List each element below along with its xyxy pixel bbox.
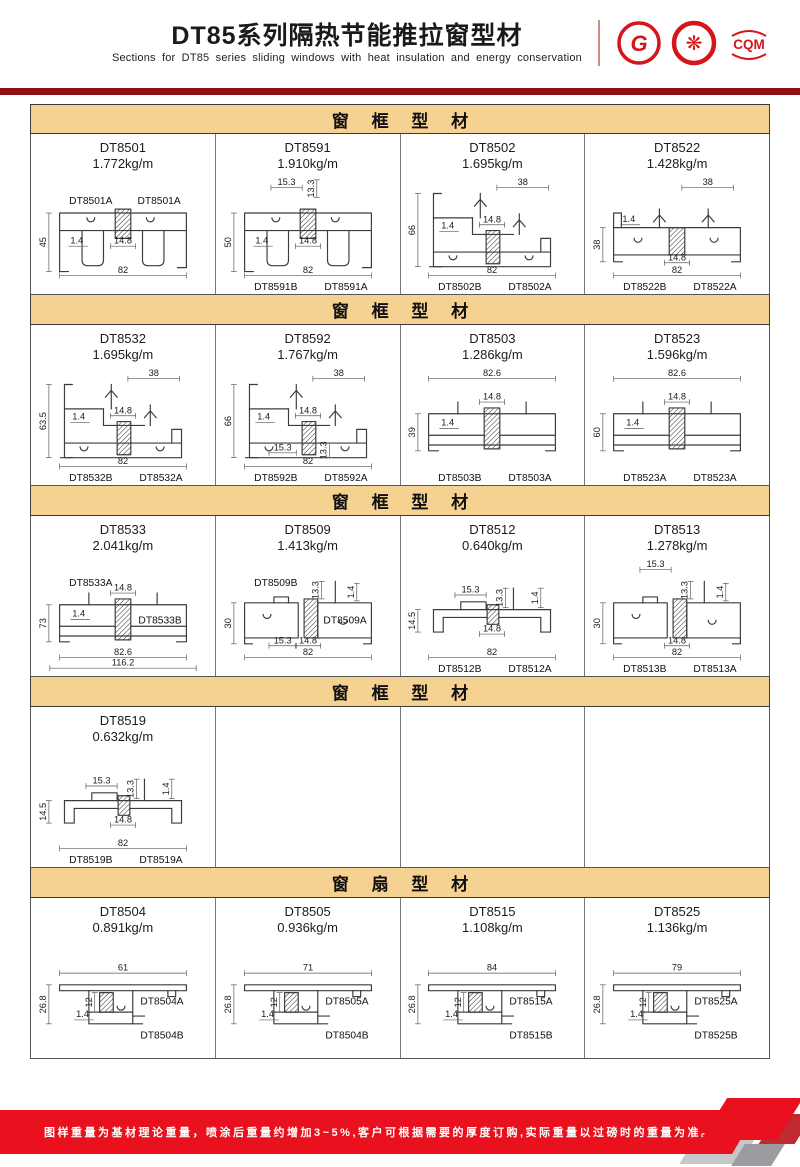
- svg-text:1.4: 1.4: [72, 608, 85, 618]
- svg-text:71: 71: [302, 962, 312, 972]
- cqm-certification-logo-icon: CQM: [726, 20, 772, 66]
- profile-row: DT8501 1.772kg/m 451.414.882DT8501ADT850…: [30, 134, 770, 295]
- svg-text:66: 66: [407, 224, 417, 234]
- svg-text:12: 12: [453, 997, 463, 1007]
- profile-cell: [216, 707, 401, 867]
- profile-section: 窗 框 型 材 DT8501 1.772kg/m 451.414.882DT85…: [30, 104, 770, 295]
- profile-model: DT8503: [469, 331, 515, 347]
- svg-text:15.3: 15.3: [647, 559, 665, 569]
- profile-row: DT8504 0.891kg/m 6126.8121.4DT8504ADT850…: [30, 898, 770, 1059]
- svg-text:26.8: 26.8: [223, 995, 233, 1013]
- svg-text:❋: ❋: [686, 33, 703, 55]
- svg-text:DT8512A: DT8512A: [509, 664, 552, 675]
- svg-text:DT8515B: DT8515B: [510, 1030, 553, 1041]
- profile-weight: 1.428kg/m: [647, 156, 708, 172]
- profile-model: DT8525: [654, 904, 700, 920]
- svg-text:30: 30: [223, 618, 233, 628]
- svg-text:82: 82: [302, 647, 312, 657]
- profile-model: DT8515: [469, 904, 515, 920]
- profile-cell: DT8512 0.640kg/m 15.313.31.414.514.882DT…: [401, 516, 586, 676]
- catalog-body: 窗 框 型 材 DT8501 1.772kg/m 451.414.882DT85…: [30, 104, 770, 1059]
- section-header: 窗 框 型 材: [30, 677, 770, 707]
- svg-text:DT8532B: DT8532B: [69, 473, 112, 484]
- svg-text:38: 38: [592, 239, 602, 249]
- profile-model: DT8509: [285, 522, 331, 538]
- svg-text:DT8592B: DT8592B: [254, 473, 297, 484]
- section-header: 窗 框 型 材: [30, 295, 770, 325]
- svg-text:30: 30: [592, 618, 602, 628]
- svg-text:1.4: 1.4: [715, 585, 725, 598]
- profile-cell: DT8515 1.108kg/m 8426.8121.4DT8515ADT851…: [401, 898, 586, 1058]
- svg-text:DT8509B: DT8509B: [254, 578, 297, 589]
- svg-text:82: 82: [672, 265, 682, 275]
- svg-text:DT8513A: DT8513A: [694, 664, 737, 675]
- profile-row: DT8533 2.041kg/m 731.414.882.6116.2DT853…: [30, 516, 770, 677]
- svg-text:26.8: 26.8: [592, 995, 602, 1013]
- svg-text:1.4: 1.4: [255, 235, 268, 245]
- profile-model: DT8505: [285, 904, 331, 920]
- profile-row: DT8532 1.695kg/m 3863.51.414.882DT8532BD…: [30, 325, 770, 486]
- profile-drawing: 15.313.3501.414.882DT8591BDT8591A: [217, 174, 399, 293]
- svg-text:84: 84: [487, 962, 497, 972]
- profile-drawing: 15.313.31.414.514.882DT8519BDT8519A: [32, 747, 214, 866]
- svg-text:66: 66: [223, 415, 233, 425]
- profile-cell: [401, 707, 586, 867]
- svg-text:DT8502B: DT8502B: [439, 282, 482, 293]
- svg-text:13.3: 13.3: [318, 441, 328, 459]
- logo-group: G ❋ CQM: [616, 20, 772, 66]
- profile-model: DT8533: [100, 522, 146, 538]
- profile-weight: 0.891kg/m: [93, 920, 154, 936]
- profile-weight: 1.695kg/m: [93, 347, 154, 363]
- footer-note-bar: 图样重量为基材理论重量，喷涂后重量约增加3~5%,客户可根据需要的厚度订购,实际…: [0, 1110, 758, 1154]
- svg-text:82: 82: [118, 456, 128, 466]
- profile-section: 窗 框 型 材 DT8519 0.632kg/m 15.313.31.414.5…: [30, 677, 770, 868]
- svg-text:82.6: 82.6: [483, 368, 501, 378]
- page-footer: 图样重量为基材理论重量，喷涂后重量约增加3~5%,客户可根据需要的厚度订购,实际…: [0, 1096, 800, 1167]
- profile-cell: DT8503 1.286kg/m 82.61.414.839DT8503BDT8…: [401, 325, 586, 485]
- svg-text:82.6: 82.6: [668, 368, 686, 378]
- svg-text:82: 82: [487, 265, 497, 275]
- profile-cell: DT8533 2.041kg/m 731.414.882.6116.2DT853…: [31, 516, 216, 676]
- section-title: 窗 框 型 材: [323, 297, 477, 322]
- profile-cell: DT8504 0.891kg/m 6126.8121.4DT8504ADT850…: [31, 898, 216, 1058]
- svg-text:61: 61: [118, 962, 128, 972]
- profile-model: DT8502: [469, 140, 515, 156]
- footer-note: 图样重量为基材理论重量，喷涂后重量约增加3~5%,客户可根据需要的厚度订购,实际…: [0, 1124, 715, 1140]
- svg-text:82: 82: [672, 647, 682, 657]
- section-title: 窗 框 型 材: [323, 488, 477, 513]
- svg-text:DT8504B: DT8504B: [325, 1030, 368, 1041]
- profile-drawing: 82.61.46014.8DT8523ADT8523A: [586, 365, 768, 484]
- svg-text:14.8: 14.8: [114, 405, 132, 415]
- profile-section: 窗 框 型 材 DT8533 2.041kg/m 731.414.882.611…: [30, 486, 770, 677]
- page-header: DT85系列隔热节能推拉窗型材 Sections for DT85 series…: [0, 20, 772, 66]
- svg-text:1.4: 1.4: [72, 411, 85, 421]
- svg-text:15.3: 15.3: [273, 442, 291, 452]
- svg-text:1.4: 1.4: [446, 1009, 459, 1019]
- profile-cell: DT8505 0.936kg/m 7126.8121.4DT8505ADT850…: [216, 898, 401, 1058]
- page-subtitle: Sections for DT85 series sliding windows…: [112, 52, 582, 64]
- svg-text:1.4: 1.4: [442, 417, 455, 427]
- profile-weight: 1.772kg/m: [93, 156, 154, 172]
- page-title: DT85系列隔热节能推拉窗型材: [112, 22, 582, 51]
- svg-text:14.8: 14.8: [668, 252, 686, 262]
- profile-drawing: 38661.414.815.313.382DT8592BDT8592A: [217, 365, 399, 484]
- profile-cell: DT8509 1.413kg/m 13.31.43015.314.882DT85…: [216, 516, 401, 676]
- svg-text:DT8591A: DT8591A: [324, 282, 367, 293]
- svg-text:82: 82: [302, 265, 312, 275]
- profile-model: DT8522: [654, 140, 700, 156]
- svg-text:14.5: 14.5: [407, 611, 417, 629]
- svg-text:26.8: 26.8: [38, 995, 48, 1013]
- profile-model: DT8523: [654, 331, 700, 347]
- profile-drawing: 38661.414.882DT8502BDT8502A: [401, 174, 583, 293]
- profile-weight: 1.767kg/m: [277, 347, 338, 363]
- header-text-block: DT85系列隔热节能推拉窗型材 Sections for DT85 series…: [112, 22, 582, 65]
- svg-text:1.4: 1.4: [345, 585, 355, 598]
- profile-cell: [585, 707, 769, 867]
- profile-drawing: 6126.8121.4DT8504ADT8504B: [32, 938, 214, 1057]
- profile-weight: 0.640kg/m: [462, 538, 523, 554]
- profile-drawing: 15.313.31.43014.882DT8513BDT8513A: [586, 556, 768, 675]
- svg-text:CQM: CQM: [733, 37, 765, 52]
- section-title: 窗 框 型 材: [323, 107, 477, 132]
- svg-text:63.5: 63.5: [38, 412, 48, 430]
- header-rule: [0, 88, 800, 95]
- svg-text:DT8503A: DT8503A: [509, 473, 552, 484]
- svg-text:DT8522A: DT8522A: [694, 282, 737, 293]
- svg-text:1.4: 1.4: [626, 417, 639, 427]
- svg-text:14.8: 14.8: [668, 391, 686, 401]
- svg-text:1.4: 1.4: [530, 591, 540, 604]
- svg-text:DT8522B: DT8522B: [623, 282, 666, 293]
- svg-text:38: 38: [333, 368, 343, 378]
- catalog-page: DT85系列隔热节能推拉窗型材 Sections for DT85 series…: [0, 0, 800, 1167]
- svg-text:G: G: [630, 31, 647, 56]
- section-title: 窗 框 型 材: [323, 679, 477, 704]
- svg-text:DT8501A: DT8501A: [69, 196, 112, 207]
- svg-text:DT8505A: DT8505A: [325, 996, 368, 1007]
- svg-text:15.3: 15.3: [273, 635, 291, 645]
- svg-text:DT8523A: DT8523A: [623, 473, 666, 484]
- svg-text:60: 60: [592, 427, 602, 437]
- svg-text:DT8501A: DT8501A: [137, 196, 180, 207]
- svg-text:DT8525B: DT8525B: [695, 1030, 738, 1041]
- svg-text:DT8503B: DT8503B: [439, 473, 482, 484]
- svg-text:13.3: 13.3: [310, 581, 320, 599]
- svg-text:14.8: 14.8: [114, 814, 132, 824]
- svg-text:14.5: 14.5: [38, 802, 48, 820]
- svg-text:12: 12: [638, 997, 648, 1007]
- profile-cell: DT8519 0.632kg/m 15.313.31.414.514.882DT…: [31, 707, 216, 867]
- section-header: 窗 框 型 材: [30, 486, 770, 516]
- svg-text:DT8504B: DT8504B: [140, 1030, 183, 1041]
- profile-cell: DT8591 1.910kg/m 15.313.3501.414.882DT85…: [216, 134, 401, 294]
- section-header: 窗 扇 型 材: [30, 868, 770, 898]
- svg-text:82: 82: [487, 647, 497, 657]
- svg-text:DT8525A: DT8525A: [695, 996, 738, 1007]
- profile-drawing: 13.31.43015.314.882DT8509BDT8509A: [217, 556, 399, 675]
- svg-text:82: 82: [302, 456, 312, 466]
- svg-text:15.3: 15.3: [462, 584, 480, 594]
- svg-text:45: 45: [38, 237, 48, 247]
- svg-text:13.3: 13.3: [495, 588, 505, 606]
- profile-model: DT8532: [100, 331, 146, 347]
- svg-text:DT8504A: DT8504A: [140, 996, 183, 1007]
- profile-weight: 1.413kg/m: [277, 538, 338, 554]
- svg-text:DT8533A: DT8533A: [69, 578, 112, 589]
- svg-text:14.8: 14.8: [299, 235, 317, 245]
- svg-text:DT8513B: DT8513B: [623, 664, 666, 675]
- profile-drawing: 82.61.414.839DT8503BDT8503A: [401, 365, 583, 484]
- profile-drawing: 381.43814.882DT8522BDT8522A: [586, 174, 768, 293]
- profile-drawing: 3863.51.414.882DT8532BDT8532A: [32, 365, 214, 484]
- profile-weight: 1.910kg/m: [277, 156, 338, 172]
- profile-weight: 1.596kg/m: [647, 347, 708, 363]
- profile-cell: DT8513 1.278kg/m 15.313.31.43014.882DT85…: [585, 516, 769, 676]
- svg-text:12: 12: [84, 997, 94, 1007]
- svg-text:1.4: 1.4: [76, 1009, 89, 1019]
- svg-text:14.8: 14.8: [483, 214, 501, 224]
- round-emblem-logo-icon: ❋: [671, 20, 717, 66]
- profile-section: 窗 框 型 材 DT8532 1.695kg/m 3863.51.414.882…: [30, 295, 770, 486]
- profile-cell: DT8592 1.767kg/m 38661.414.815.313.382DT…: [216, 325, 401, 485]
- svg-text:1.4: 1.4: [623, 213, 636, 223]
- profile-drawing: 7126.8121.4DT8505ADT8504B: [217, 938, 399, 1057]
- svg-text:26.8: 26.8: [407, 995, 417, 1013]
- svg-text:38: 38: [703, 177, 713, 187]
- header-divider: [598, 20, 600, 66]
- svg-text:1.4: 1.4: [261, 1009, 274, 1019]
- svg-text:14.8: 14.8: [114, 582, 132, 592]
- profile-section: 窗 扇 型 材 DT8504 0.891kg/m 6126.8121.4DT85…: [30, 868, 770, 1059]
- jiahua-certification-logo-icon: G: [616, 20, 662, 66]
- profile-model: DT8504: [100, 904, 146, 920]
- profile-weight: 2.041kg/m: [93, 538, 154, 554]
- profile-drawing: 451.414.882DT8501ADT8501A: [32, 174, 214, 293]
- svg-text:14.8: 14.8: [299, 405, 317, 415]
- profile-model: DT8592: [285, 331, 331, 347]
- profile-model: DT8591: [285, 140, 331, 156]
- svg-text:116.2: 116.2: [112, 657, 134, 667]
- svg-text:DT8533B: DT8533B: [138, 615, 181, 626]
- svg-text:DT8502A: DT8502A: [509, 282, 552, 293]
- profile-model: DT8519: [100, 713, 146, 729]
- svg-text:DT8523A: DT8523A: [694, 473, 737, 484]
- svg-text:DT8519A: DT8519A: [139, 855, 182, 866]
- profile-drawing: 15.313.31.414.514.882DT8512BDT8512A: [401, 556, 583, 675]
- svg-text:13.3: 13.3: [305, 179, 315, 197]
- profile-cell: DT8532 1.695kg/m 3863.51.414.882DT8532BD…: [31, 325, 216, 485]
- svg-text:1.4: 1.4: [70, 235, 83, 245]
- svg-text:82.6: 82.6: [114, 647, 132, 657]
- svg-text:38: 38: [148, 368, 158, 378]
- profile-drawing: 731.414.882.6116.2DT8533ADT8533B: [32, 556, 214, 675]
- svg-text:13.3: 13.3: [126, 779, 136, 797]
- profile-cell: DT8523 1.596kg/m 82.61.46014.8DT8523ADT8…: [585, 325, 769, 485]
- profile-weight: 1.695kg/m: [462, 156, 523, 172]
- profile-model: DT8501: [100, 140, 146, 156]
- section-title: 窗 扇 型 材: [323, 870, 477, 895]
- svg-text:15.3: 15.3: [92, 775, 110, 785]
- profile-weight: 1.286kg/m: [462, 347, 523, 363]
- svg-text:82: 82: [118, 838, 128, 848]
- svg-text:1.4: 1.4: [161, 782, 171, 795]
- svg-text:15.3: 15.3: [277, 177, 295, 187]
- profile-drawing: 8426.8121.4DT8515ADT8515B: [401, 938, 583, 1057]
- svg-text:DT8591B: DT8591B: [254, 282, 297, 293]
- profile-weight: 1.278kg/m: [647, 538, 708, 554]
- svg-text:12: 12: [268, 997, 278, 1007]
- svg-text:82: 82: [118, 265, 128, 275]
- svg-text:1.4: 1.4: [257, 411, 270, 421]
- section-header: 窗 框 型 材: [30, 104, 770, 134]
- svg-text:38: 38: [518, 177, 528, 187]
- svg-text:DT8515A: DT8515A: [510, 996, 553, 1007]
- profile-cell: DT8502 1.695kg/m 38661.414.882DT8502BDT8…: [401, 134, 586, 294]
- svg-text:73: 73: [38, 618, 48, 628]
- svg-text:14.8: 14.8: [114, 235, 132, 245]
- svg-text:14.8: 14.8: [668, 635, 686, 645]
- profile-model: DT8512: [469, 522, 515, 538]
- svg-text:DT8509A: DT8509A: [323, 615, 366, 626]
- svg-text:DT8512B: DT8512B: [439, 664, 482, 675]
- profile-model: DT8513: [654, 522, 700, 538]
- svg-text:14.8: 14.8: [483, 623, 501, 633]
- svg-text:13.3: 13.3: [680, 581, 690, 599]
- profile-weight: 0.632kg/m: [93, 729, 154, 745]
- profile-drawing: 7926.8121.4DT8525ADT8525B: [586, 938, 768, 1057]
- profile-weight: 1.136kg/m: [647, 920, 708, 936]
- profile-row: DT8519 0.632kg/m 15.313.31.414.514.882DT…: [30, 707, 770, 868]
- svg-text:50: 50: [223, 237, 233, 247]
- svg-text:1.4: 1.4: [442, 220, 455, 230]
- profile-cell: DT8525 1.136kg/m 7926.8121.4DT8525ADT852…: [585, 898, 769, 1058]
- svg-text:79: 79: [672, 962, 682, 972]
- profile-cell: DT8522 1.428kg/m 381.43814.882DT8522BDT8…: [585, 134, 769, 294]
- svg-text:39: 39: [407, 427, 417, 437]
- svg-text:14.8: 14.8: [299, 635, 317, 645]
- svg-text:14.8: 14.8: [483, 391, 501, 401]
- svg-text:1.4: 1.4: [630, 1009, 643, 1019]
- profile-cell: DT8501 1.772kg/m 451.414.882DT8501ADT850…: [31, 134, 216, 294]
- svg-text:DT8532A: DT8532A: [139, 473, 182, 484]
- profile-weight: 0.936kg/m: [277, 920, 338, 936]
- svg-text:DT8519B: DT8519B: [69, 855, 112, 866]
- profile-weight: 1.108kg/m: [462, 920, 523, 936]
- svg-text:DT8592A: DT8592A: [324, 473, 367, 484]
